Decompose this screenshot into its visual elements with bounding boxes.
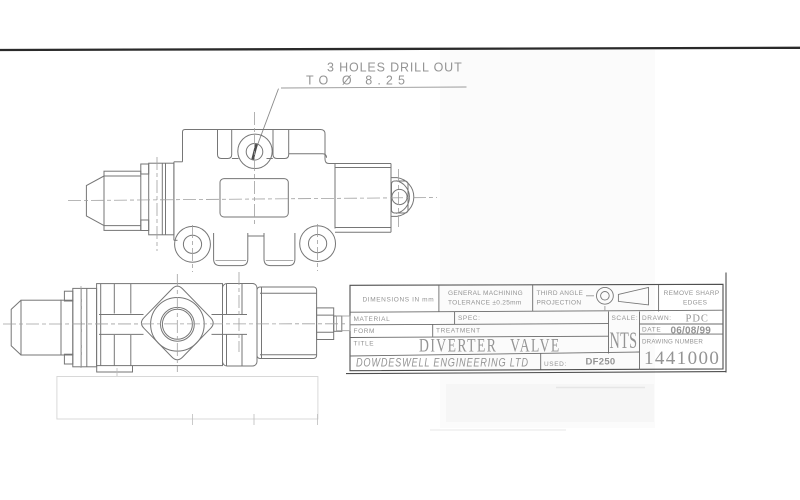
svg-text:FORM: FORM <box>354 328 376 335</box>
svg-text:EDGES: EDGES <box>683 299 708 306</box>
svg-text:TREATMENT: TREATMENT <box>436 327 481 334</box>
svg-text:DIVERTER VALVE: DIVERTER VALVE <box>419 334 561 356</box>
svg-text:USED:: USED: <box>544 361 567 368</box>
svg-text:SCALE:: SCALE: <box>612 315 639 322</box>
svg-text:SPEC:: SPEC: <box>458 315 481 322</box>
svg-text:DATE: DATE <box>642 327 661 334</box>
svg-text:3 HOLES DRILL OUT: 3 HOLES DRILL OUT <box>327 61 463 75</box>
svg-text:THIRD ANGLE: THIRD ANGLE <box>537 290 584 297</box>
svg-text:DOWDESWELL ENGINEERING LTD: DOWDESWELL ENGINEERING LTD <box>356 356 529 369</box>
svg-text:MATERIAL: MATERIAL <box>354 316 391 323</box>
svg-text:NTS: NTS <box>610 329 638 354</box>
svg-text:DIMENSIONS IN mm: DIMENSIONS IN mm <box>363 296 435 303</box>
svg-text:06/08/99: 06/08/99 <box>671 326 712 337</box>
svg-text:DRAWING NUMBER: DRAWING NUMBER <box>642 339 703 346</box>
svg-text:1441000: 1441000 <box>644 348 720 369</box>
svg-text:PDC: PDC <box>686 314 709 325</box>
svg-text:TOLERANCE ±0.25mm: TOLERANCE ±0.25mm <box>448 299 522 306</box>
svg-text:GENERAL MACHINING: GENERAL MACHINING <box>448 290 523 297</box>
svg-text:DRAWN:: DRAWN: <box>642 315 672 322</box>
svg-text:PROJECTION: PROJECTION <box>537 299 582 306</box>
svg-text:DF250: DF250 <box>586 357 616 368</box>
svg-text:REMOVE SHARP: REMOVE SHARP <box>664 290 720 297</box>
svg-text:TITLE: TITLE <box>354 341 375 348</box>
svg-text:TO Ø 8.25: TO Ø 8.25 <box>306 74 410 88</box>
